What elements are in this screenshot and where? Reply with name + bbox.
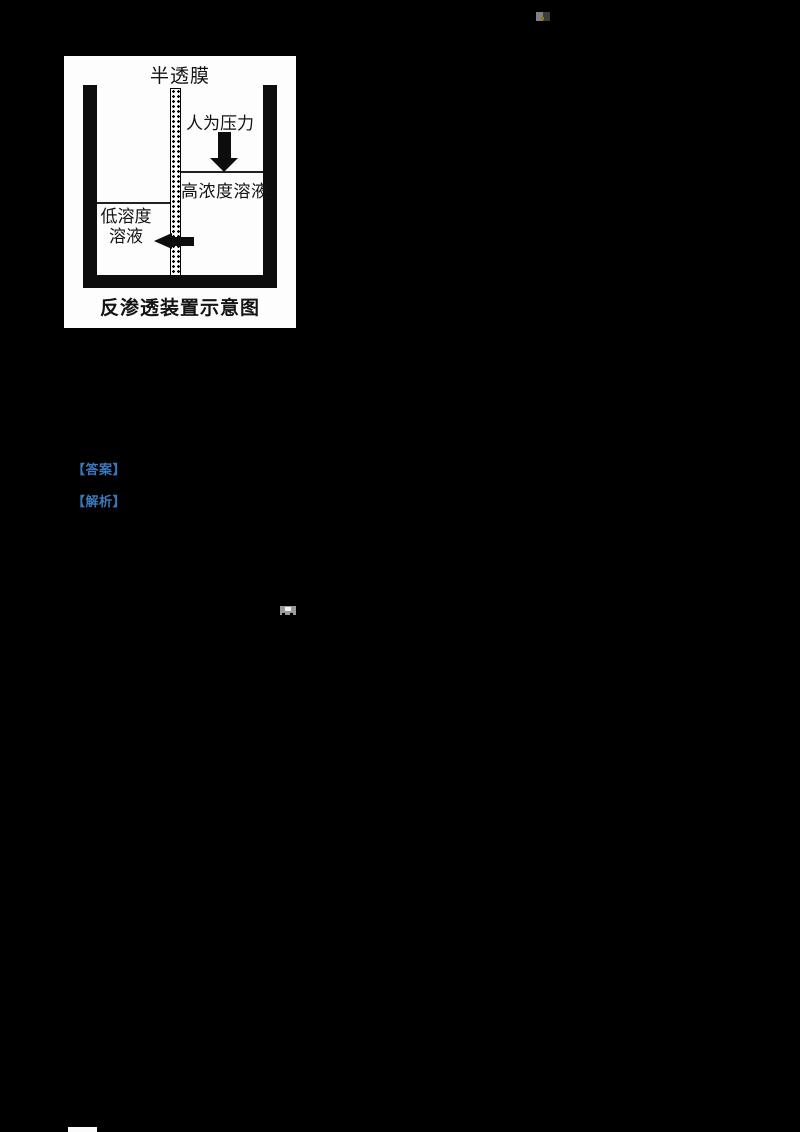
- down-arrow-head-icon: [210, 158, 238, 172]
- left-arrow-icon: [172, 237, 194, 246]
- cropped-image-fragment: [68, 1127, 97, 1132]
- broken-image-dot: [541, 17, 544, 20]
- analysis-tag-link[interactable]: 【解析】: [72, 491, 126, 510]
- broken-image-icon: [536, 12, 550, 21]
- low-concentration-line1: 低溶度: [101, 207, 152, 227]
- down-arrow-icon: [218, 132, 231, 158]
- beaker-floor: [83, 275, 277, 288]
- figure-caption: 反渗透装置示意图: [64, 293, 296, 320]
- answer-tag-link[interactable]: 【答案】: [72, 459, 126, 478]
- left-arrow-head-icon: [154, 233, 172, 249]
- document-page: 半透膜 人为压力 高浓度溶液 低溶度 溶液 反渗透装置示意图 【答案】 【解析】: [0, 0, 800, 1132]
- image-placeholder-notch-left: [282, 613, 285, 615]
- left-liquid-level-line: [97, 202, 170, 204]
- pressure-label: 人为压力: [186, 109, 254, 134]
- reverse-osmosis-figure: 半透膜 人为压力 高浓度溶液 低溶度 溶液 反渗透装置示意图: [64, 56, 296, 328]
- image-placeholder-icon: [280, 606, 296, 615]
- membrane-label: 半透膜: [148, 61, 212, 88]
- low-concentration-line2: 溶液: [109, 227, 143, 247]
- high-concentration-label: 高浓度溶液: [181, 177, 269, 202]
- low-concentration-label: 低溶度 溶液: [92, 207, 160, 247]
- broken-image-right-half: [543, 12, 550, 21]
- image-placeholder-notch-right: [290, 613, 293, 615]
- image-placeholder-inner: [285, 607, 291, 611]
- beaker-left-wall: [83, 85, 97, 288]
